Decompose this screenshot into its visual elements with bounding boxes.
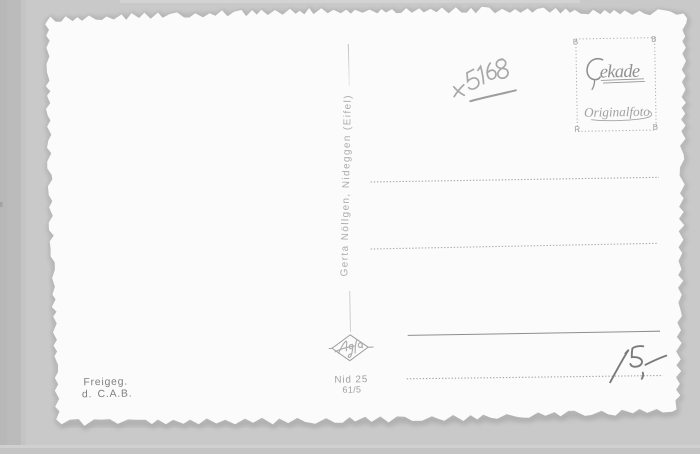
svg-text:B: B [651,35,657,44]
svg-text:R: R [574,125,580,134]
svg-text:Originalfoto: Originalfoto [584,104,651,120]
svg-text:61/5: 61/5 [342,384,361,394]
svg-text:Freigeg.: Freigeg. [83,377,128,389]
svg-text:d. C.A.B.: d. C.A.B. [82,389,133,401]
svg-text:B: B [573,37,579,46]
svg-text:B: B [653,122,659,131]
